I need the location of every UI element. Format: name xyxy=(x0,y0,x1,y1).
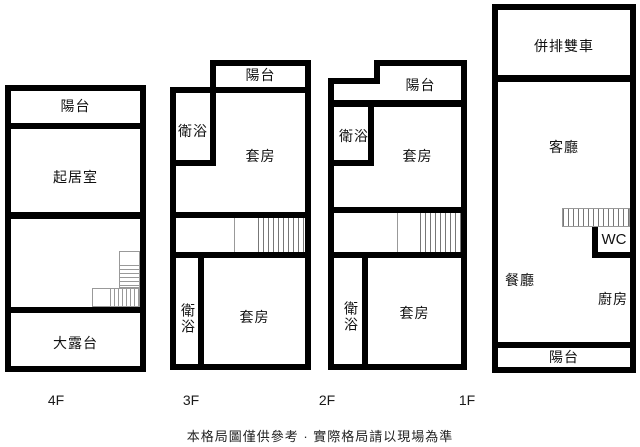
wall xyxy=(492,367,636,373)
floor-label-2f: 2F xyxy=(307,392,347,408)
wall xyxy=(170,364,311,370)
room-label-suite: 套房 xyxy=(204,309,305,325)
stairs xyxy=(562,208,630,227)
stair-treads xyxy=(258,218,305,252)
room-label-bathroom: 衛浴 xyxy=(170,123,216,139)
stair-landing-divider xyxy=(397,213,398,252)
wall xyxy=(5,212,146,219)
room-label-suite: 套房 xyxy=(368,305,461,321)
wall xyxy=(305,87,311,370)
wall xyxy=(5,307,146,313)
floor-label-3f: 3F xyxy=(171,392,211,408)
room-label-living-room: 客廳 xyxy=(498,139,630,155)
room-label-bathroom: 衛浴 xyxy=(334,128,374,144)
wall xyxy=(170,160,216,166)
room-label-garage: 併排雙車 xyxy=(498,38,630,54)
wall xyxy=(328,252,467,258)
floorplan-image: 陽台 起居室 大露台 4F 陽台 衛浴 套房 衛浴 套房 3F xyxy=(0,0,640,447)
stair-treads xyxy=(420,213,461,252)
room-label-suite: 套房 xyxy=(216,148,305,164)
wall xyxy=(492,342,636,348)
room-label-wc: WC xyxy=(598,232,630,248)
room-label-balcony: 陽台 xyxy=(380,77,461,93)
wall xyxy=(492,4,636,10)
wall xyxy=(630,4,636,373)
room-label-suite: 套房 xyxy=(374,148,461,164)
room-label-bathroom: 衛浴 xyxy=(176,294,198,344)
stair-treads xyxy=(120,265,139,287)
room-label-bathroom: 衛浴 xyxy=(339,292,361,342)
stair-treads xyxy=(110,289,139,306)
room-label-balcony: 陽台 xyxy=(498,349,630,365)
disclaimer-text: 本格局圖僅供參考 · 實際格局請以現場為準 xyxy=(0,426,640,445)
stairs-horizontal-run xyxy=(92,288,140,307)
wall xyxy=(328,160,374,166)
room-label-balcony: 陽台 xyxy=(5,98,146,114)
floor-label-4f: 4F xyxy=(36,392,76,408)
wall xyxy=(328,78,380,84)
wall xyxy=(170,252,311,258)
wall xyxy=(210,60,311,66)
wall xyxy=(592,252,636,258)
room-label-balcony: 陽台 xyxy=(210,67,311,83)
wall xyxy=(328,100,467,107)
room-label-living-room: 起居室 xyxy=(5,169,146,185)
wall xyxy=(170,87,311,93)
room-label-terrace: 大露台 xyxy=(5,335,146,351)
wall xyxy=(5,85,146,91)
room-label-dining-room: 餐廳 xyxy=(500,272,540,288)
wall xyxy=(492,75,636,82)
stair-landing-divider xyxy=(234,218,235,252)
room-label-kitchen: 廚房 xyxy=(592,291,634,307)
stairs-vertical-run xyxy=(119,251,140,288)
wall xyxy=(328,364,467,370)
wall xyxy=(374,60,467,66)
wall xyxy=(5,123,146,129)
wall xyxy=(5,366,146,372)
floor-label-1f: 1F xyxy=(447,392,487,408)
wall xyxy=(328,78,334,370)
wall xyxy=(492,4,498,373)
